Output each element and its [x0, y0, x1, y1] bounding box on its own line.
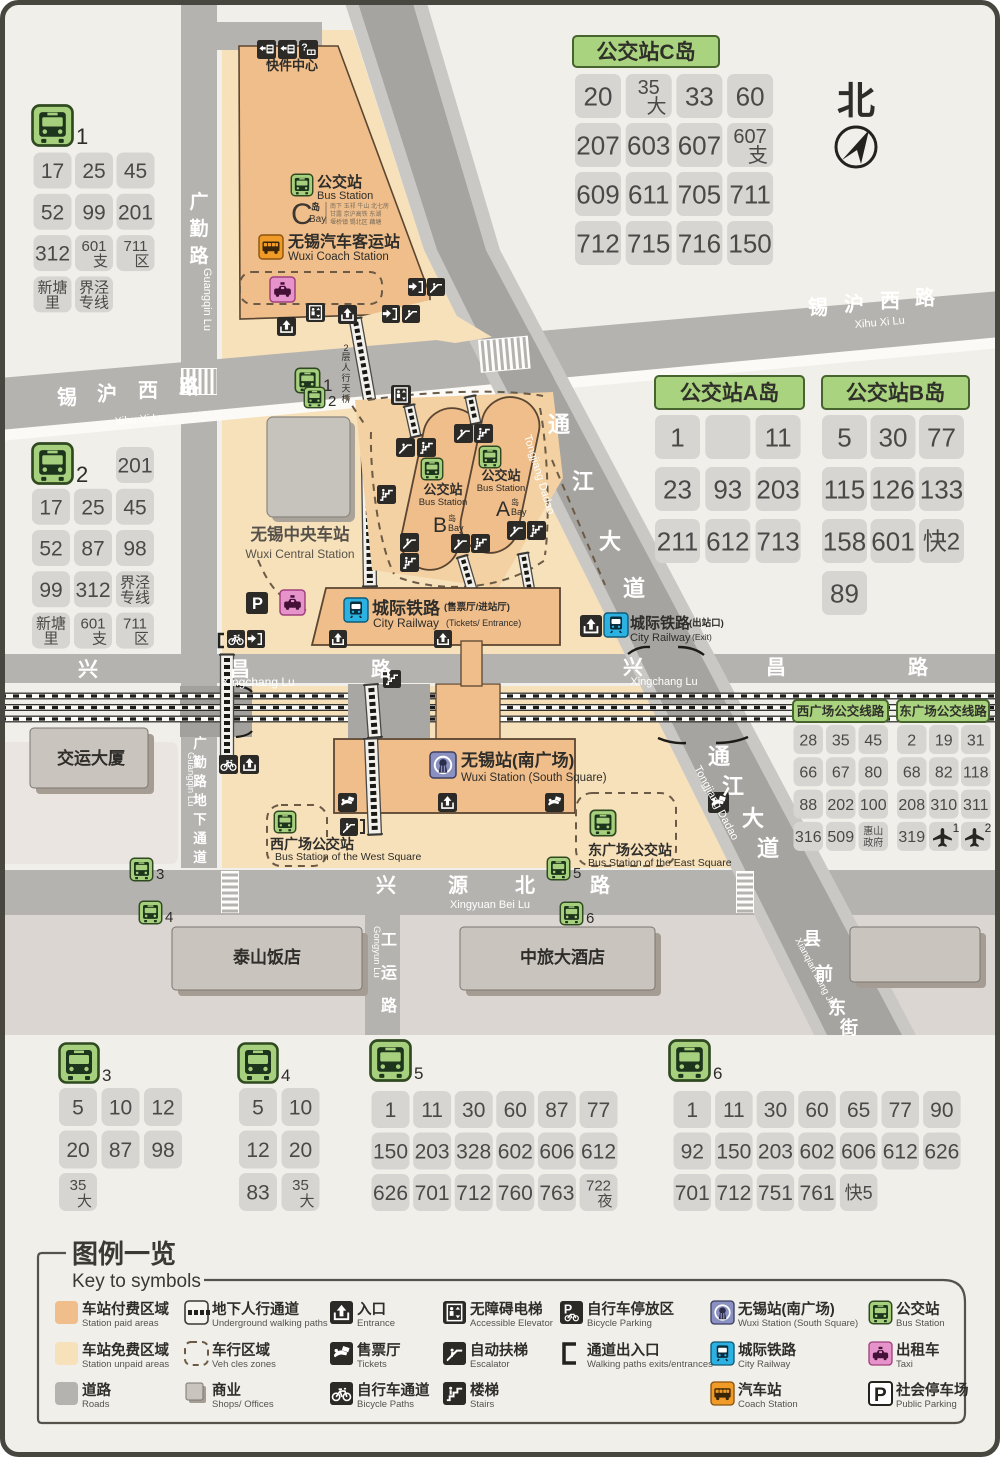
svg-text:沪: 沪 — [97, 382, 117, 406]
svg-text:606: 606 — [539, 1141, 574, 1164]
svg-text:77: 77 — [889, 1099, 912, 1122]
svg-text:87: 87 — [81, 538, 104, 561]
svg-text:20: 20 — [289, 1139, 312, 1162]
svg-text:712: 712 — [456, 1182, 491, 1205]
svg-text:65: 65 — [847, 1099, 870, 1122]
svg-text:无障碍电梯: 无障碍电梯 — [470, 1300, 543, 1318]
svg-text:层: 层 — [341, 352, 350, 362]
svg-text:312: 312 — [75, 579, 110, 602]
svg-text:惠山: 惠山 — [863, 824, 883, 837]
svg-text:705: 705 — [678, 179, 721, 209]
svg-text:5: 5 — [72, 1097, 84, 1120]
svg-text:公交站C岛: 公交站C岛 — [596, 40, 695, 64]
svg-text:北: 北 — [837, 81, 875, 123]
svg-text:城际铁路: 城际铁路 — [372, 598, 441, 618]
svg-text:713: 713 — [756, 526, 799, 556]
svg-text:公交站: 公交站 — [481, 468, 520, 483]
svg-text:312: 312 — [35, 243, 70, 266]
svg-text:图例一览: 图例一览 — [72, 1239, 176, 1269]
svg-text:19: 19 — [935, 732, 953, 749]
svg-text:路: 路 — [189, 244, 209, 267]
svg-text:City Railway: City Railway — [373, 616, 439, 630]
svg-text:路: 路 — [915, 285, 936, 309]
svg-text:716: 716 — [678, 228, 721, 258]
svg-text:20: 20 — [584, 81, 613, 111]
svg-text:11: 11 — [765, 422, 792, 452]
svg-text:90: 90 — [930, 1099, 953, 1122]
svg-text:626: 626 — [924, 1141, 959, 1164]
svg-text:80: 80 — [864, 765, 882, 782]
svg-text:Bay: Bay — [309, 214, 326, 225]
svg-text:南下 玉祁 牛山 北七房: 南下 玉祁 牛山 北七房 — [330, 202, 389, 210]
svg-text:大: 大 — [299, 1193, 314, 1210]
svg-text:100: 100 — [860, 797, 887, 814]
svg-text:150: 150 — [728, 228, 771, 258]
svg-text:35: 35 — [292, 1177, 309, 1194]
svg-text:楼梯: 楼梯 — [470, 1381, 499, 1399]
svg-text:2: 2 — [328, 393, 336, 410]
svg-text:203: 203 — [758, 1141, 793, 1164]
svg-text:路: 路 — [371, 657, 392, 681]
svg-text:612: 612 — [883, 1141, 918, 1164]
svg-text:10: 10 — [109, 1097, 132, 1120]
svg-text:310: 310 — [930, 797, 957, 814]
svg-text:4: 4 — [281, 1066, 290, 1085]
svg-text:10: 10 — [289, 1097, 312, 1120]
svg-text:52: 52 — [39, 538, 62, 561]
svg-text:203: 203 — [415, 1141, 450, 1164]
svg-text:政府: 政府 — [863, 836, 883, 849]
svg-text:712: 712 — [716, 1182, 751, 1205]
svg-text:江: 江 — [572, 469, 594, 494]
svg-text:3: 3 — [156, 866, 164, 883]
svg-text:87: 87 — [109, 1139, 132, 1162]
svg-text:无锡站(南广场): 无锡站(南广场) — [738, 1300, 835, 1318]
svg-text:通: 通 — [548, 412, 570, 437]
svg-text:西: 西 — [880, 291, 900, 313]
svg-text:沪: 沪 — [844, 292, 864, 316]
svg-text:98: 98 — [151, 1139, 174, 1162]
svg-text:45: 45 — [864, 732, 882, 749]
svg-text:通: 通 — [708, 744, 730, 769]
svg-text:98: 98 — [123, 538, 146, 561]
svg-text:1: 1 — [953, 821, 960, 835]
svg-text:快2: 快2 — [923, 529, 960, 556]
svg-text:208: 208 — [898, 797, 925, 814]
svg-text:锡: 锡 — [808, 295, 828, 319]
svg-text:Bus Station: Bus Station — [419, 497, 468, 508]
svg-text:下: 下 — [193, 812, 207, 827]
svg-text:201: 201 — [117, 455, 152, 478]
svg-text:601: 601 — [871, 526, 914, 556]
svg-text:兴: 兴 — [78, 658, 98, 681]
svg-text:源: 源 — [448, 874, 468, 897]
svg-text:1: 1 — [670, 422, 684, 452]
svg-text:Wuxi Station (South Square): Wuxi Station (South Square) — [461, 772, 607, 784]
svg-text:道: 道 — [193, 849, 207, 865]
svg-text:出租车: 出租车 — [896, 1341, 940, 1359]
svg-text:45: 45 — [124, 160, 147, 183]
svg-text:11: 11 — [421, 1099, 443, 1122]
svg-text:社会停车场: 社会停车场 — [895, 1381, 969, 1399]
svg-text:2: 2 — [907, 732, 916, 749]
svg-text:道: 道 — [623, 576, 645, 601]
svg-text:35: 35 — [832, 732, 850, 749]
svg-text:12: 12 — [246, 1139, 269, 1162]
svg-text:Entrance: Entrance — [357, 1318, 395, 1329]
svg-text:岛: 岛 — [511, 497, 519, 507]
svg-text:118: 118 — [963, 765, 989, 782]
svg-text:Bus Station: Bus Station — [896, 1318, 945, 1329]
svg-text:17: 17 — [39, 496, 62, 519]
svg-text:街: 街 — [839, 1017, 858, 1038]
svg-text:区: 区 — [134, 631, 149, 648]
svg-text:45: 45 — [123, 496, 146, 519]
svg-text:车行区域: 车行区域 — [212, 1341, 270, 1359]
svg-text:202: 202 — [827, 797, 854, 814]
svg-text:68: 68 — [903, 765, 921, 782]
svg-text:23: 23 — [663, 474, 692, 504]
svg-text:Accessible Elevator: Accessible Elevator — [470, 1318, 553, 1329]
svg-text:支: 支 — [92, 631, 107, 648]
svg-text:(出站口): (出站口) — [689, 617, 724, 629]
svg-text:里: 里 — [43, 631, 58, 648]
svg-text:1: 1 — [686, 1099, 698, 1122]
svg-text:(Exit): (Exit) — [692, 632, 712, 642]
svg-text:工: 工 — [381, 932, 397, 949]
svg-text:89: 89 — [830, 578, 859, 608]
svg-text:岛: 岛 — [311, 201, 320, 212]
svg-text:Bicycle Parking: Bicycle Parking — [587, 1318, 652, 1329]
svg-text:兴: 兴 — [376, 874, 396, 897]
svg-text:158: 158 — [823, 526, 866, 556]
svg-text:77: 77 — [927, 422, 956, 452]
svg-text:Coach Station: Coach Station — [738, 1399, 798, 1410]
svg-text:4: 4 — [165, 909, 173, 926]
svg-text:里: 里 — [45, 294, 60, 311]
svg-text:Escalator: Escalator — [470, 1359, 510, 1370]
svg-text:Bus Station of the West Square: Bus Station of the West Square — [275, 851, 421, 863]
svg-text:93: 93 — [713, 474, 742, 504]
svg-text:交运大厦: 交运大厦 — [57, 748, 126, 768]
svg-text:31: 31 — [967, 732, 985, 749]
svg-text:商业: 商业 — [212, 1381, 241, 1399]
svg-text:Guangqin Lu: Guangqin Lu — [185, 752, 196, 806]
svg-text:车站免费区域: 车站免费区域 — [82, 1341, 169, 1359]
svg-text:Xingchang Lu: Xingchang Lu — [630, 676, 697, 688]
svg-text:无锡中央车站: 无锡中央车站 — [250, 524, 351, 544]
svg-text:760: 760 — [498, 1182, 533, 1205]
svg-text:1: 1 — [76, 124, 88, 149]
svg-text:Station paid areas: Station paid areas — [82, 1318, 159, 1329]
svg-text:甘露 京沪高铁 东湖: 甘露 京沪高铁 东湖 — [330, 210, 381, 218]
svg-text:Wuxi Central Station: Wuxi Central Station — [245, 547, 354, 561]
svg-text:Taxi: Taxi — [896, 1359, 913, 1370]
svg-text:Shops/ Offices: Shops/ Offices — [212, 1399, 274, 1410]
svg-text:城际铁路: 城际铁路 — [738, 1341, 796, 1359]
svg-text:701: 701 — [415, 1182, 450, 1205]
svg-text:车站付费区域: 车站付费区域 — [82, 1300, 169, 1318]
svg-text:泰山饭店: 泰山饭店 — [233, 947, 301, 967]
svg-text:锡: 锡 — [57, 385, 77, 409]
svg-text:Bicycle Paths: Bicycle Paths — [357, 1399, 414, 1410]
svg-text:道路: 道路 — [82, 1381, 111, 1399]
svg-text:自行车停放区: 自行车停放区 — [587, 1300, 674, 1318]
svg-text:30: 30 — [764, 1099, 787, 1122]
svg-text:大: 大 — [77, 1193, 92, 1210]
svg-text:Bay: Bay — [448, 523, 464, 533]
svg-text:99: 99 — [82, 201, 105, 224]
svg-text:701: 701 — [675, 1182, 710, 1205]
svg-text:广: 广 — [193, 735, 207, 751]
svg-text:66: 66 — [799, 765, 817, 782]
svg-text:桥: 桥 — [341, 393, 350, 404]
svg-text:603: 603 — [627, 130, 670, 160]
svg-text:712: 712 — [576, 228, 619, 258]
svg-text:126: 126 — [871, 474, 914, 504]
svg-text:东广场公交线路: 东广场公交线路 — [899, 704, 987, 719]
svg-text:Bay: Bay — [511, 507, 527, 517]
svg-text:Public Parking: Public Parking — [896, 1399, 957, 1410]
svg-text:763: 763 — [539, 1182, 574, 1205]
svg-text:25: 25 — [81, 496, 104, 519]
svg-text:52: 52 — [41, 201, 64, 224]
svg-text:602: 602 — [800, 1141, 835, 1164]
svg-text:地下人行通道: 地下人行通道 — [212, 1300, 299, 1318]
svg-text:328: 328 — [456, 1141, 491, 1164]
svg-text:35: 35 — [70, 1177, 87, 1194]
svg-text:城际铁路: 城际铁路 — [630, 614, 691, 632]
svg-text:150: 150 — [716, 1141, 751, 1164]
svg-text:28: 28 — [799, 732, 817, 749]
svg-text:Bus Station: Bus Station — [477, 483, 526, 494]
svg-text:606: 606 — [841, 1141, 876, 1164]
svg-text:Walking paths exits/entrances: Walking paths exits/entrances — [587, 1359, 713, 1370]
svg-text:东广场公交站: 东广场公交站 — [588, 842, 672, 858]
svg-text:中旅大酒店: 中旅大酒店 — [520, 947, 605, 967]
svg-text:77: 77 — [587, 1099, 610, 1122]
svg-text:西广场公交站: 西广场公交站 — [270, 836, 354, 852]
svg-text:92: 92 — [681, 1141, 704, 1164]
svg-text:公交站A岛: 公交站A岛 — [680, 381, 779, 405]
svg-text:12: 12 — [151, 1097, 174, 1120]
svg-text:B: B — [433, 514, 447, 537]
svg-text:60: 60 — [736, 81, 765, 111]
svg-text:专线: 专线 — [120, 589, 150, 606]
svg-text:自行车通道: 自行车通道 — [357, 1381, 430, 1399]
svg-text:路: 路 — [590, 873, 611, 897]
svg-text:612: 612 — [706, 526, 749, 556]
svg-text:人: 人 — [341, 363, 350, 373]
svg-text:715: 715 — [627, 228, 670, 258]
svg-text:25: 25 — [82, 160, 105, 183]
svg-text:(售票厅/进站厅): (售票厅/进站厅) — [444, 601, 510, 613]
svg-text:Xingyuan Bei Lu: Xingyuan Bei Lu — [450, 899, 530, 911]
svg-text:堰桥镇 锡北区 藕塘: 堰桥镇 锡北区 藕塘 — [330, 218, 381, 226]
svg-text:City Railway: City Railway — [738, 1359, 791, 1370]
svg-text:203: 203 — [756, 474, 799, 504]
svg-text:行: 行 — [341, 372, 350, 383]
svg-text:专线: 专线 — [79, 294, 109, 311]
svg-text:311: 311 — [963, 797, 989, 814]
svg-text:通: 通 — [193, 831, 207, 846]
svg-text:761: 761 — [800, 1182, 835, 1205]
svg-text:Underground walking paths: Underground walking paths — [212, 1318, 328, 1329]
svg-text:Key to symbols: Key to symbols — [72, 1271, 201, 1292]
svg-text:30: 30 — [879, 422, 908, 452]
svg-text:316: 316 — [795, 829, 822, 846]
svg-text:2: 2 — [76, 462, 88, 487]
svg-text:大: 大 — [599, 529, 621, 554]
svg-text:60: 60 — [504, 1099, 527, 1122]
svg-text:Guangqin Lu: Guangqin Lu — [201, 268, 213, 331]
svg-text:广: 广 — [189, 190, 208, 213]
svg-text:岛: 岛 — [448, 513, 456, 523]
svg-text:33: 33 — [685, 81, 714, 111]
svg-text:北: 北 — [515, 874, 535, 897]
svg-text:115: 115 — [824, 474, 865, 504]
svg-text:67: 67 — [832, 765, 850, 782]
svg-text:Veh cles zones: Veh cles zones — [212, 1359, 276, 1370]
svg-text:支: 支 — [748, 144, 768, 167]
svg-text:Xingchang Lu: Xingchang Lu — [221, 675, 294, 689]
svg-text:入口: 入口 — [357, 1301, 386, 1318]
svg-text:西: 西 — [138, 380, 158, 402]
svg-text:207: 207 — [576, 130, 619, 160]
svg-text:5: 5 — [252, 1097, 264, 1120]
svg-text:Roads: Roads — [82, 1399, 110, 1410]
svg-text:611: 611 — [628, 179, 669, 209]
svg-text:751: 751 — [758, 1182, 793, 1205]
svg-text:快件中心: 快件中心 — [266, 58, 318, 73]
svg-text:99: 99 — [39, 579, 62, 602]
svg-text:602: 602 — [498, 1141, 533, 1164]
svg-text:快5: 快5 — [845, 1183, 873, 1203]
svg-text:2: 2 — [985, 821, 992, 835]
svg-text:支: 支 — [93, 253, 108, 270]
svg-text:133: 133 — [920, 474, 963, 504]
svg-text:150: 150 — [373, 1141, 408, 1164]
svg-text:11: 11 — [723, 1099, 745, 1122]
svg-text:711: 711 — [729, 179, 770, 209]
svg-text:道: 道 — [757, 836, 779, 861]
svg-text:5: 5 — [414, 1064, 423, 1083]
svg-text:20: 20 — [66, 1139, 89, 1162]
svg-text:3: 3 — [102, 1066, 111, 1085]
svg-text:211: 211 — [657, 526, 698, 556]
svg-text:(Tickets/ Entrance): (Tickets/ Entrance) — [446, 618, 521, 628]
svg-text:6: 6 — [713, 1064, 722, 1083]
svg-text:自动扶梯: 自动扶梯 — [470, 1341, 528, 1359]
svg-text:汽车站: 汽车站 — [738, 1381, 782, 1399]
svg-text:5: 5 — [837, 422, 851, 452]
svg-text:87: 87 — [545, 1099, 568, 1122]
svg-text:江: 江 — [722, 774, 744, 799]
svg-text:Wuxi Coach Station: Wuxi Coach Station — [288, 251, 389, 263]
svg-text:Gongyun Lu: Gongyun Lu — [371, 926, 382, 978]
svg-text:319: 319 — [898, 829, 925, 846]
svg-text:公交站: 公交站 — [896, 1300, 940, 1318]
svg-text:Station unpaid areas: Station unpaid areas — [82, 1359, 169, 1370]
svg-text:勤: 勤 — [189, 217, 208, 240]
svg-text:5: 5 — [573, 865, 581, 882]
svg-text:大: 大 — [647, 95, 667, 118]
svg-text:722: 722 — [586, 1178, 611, 1195]
svg-text:路: 路 — [179, 375, 200, 399]
svg-text:6: 6 — [586, 910, 594, 927]
svg-text:昌: 昌 — [766, 656, 786, 679]
svg-text:无锡汽车客运站: 无锡汽车客运站 — [287, 232, 400, 251]
svg-text:售票厅: 售票厅 — [357, 1341, 401, 1359]
svg-text:路: 路 — [908, 655, 929, 679]
svg-text:P: P — [252, 595, 263, 613]
svg-text:88: 88 — [799, 797, 817, 814]
svg-text:Wuxi Station (South Square): Wuxi Station (South Square) — [738, 1318, 858, 1329]
svg-text:17: 17 — [41, 160, 64, 183]
svg-text:Bus Station of the East Square: Bus Station of the East Square — [588, 857, 732, 869]
svg-text:1: 1 — [385, 1099, 397, 1122]
svg-text:201: 201 — [118, 201, 153, 224]
svg-text:?: ? — [301, 42, 307, 53]
svg-text:公交站: 公交站 — [317, 173, 362, 191]
svg-text:区: 区 — [134, 253, 149, 270]
svg-text:Bus Station: Bus Station — [317, 190, 373, 202]
svg-text:607: 607 — [678, 130, 721, 160]
svg-text:P: P — [874, 1385, 887, 1406]
svg-text:82: 82 — [935, 765, 953, 782]
svg-text:夜: 夜 — [597, 1193, 612, 1210]
svg-text:626: 626 — [373, 1182, 408, 1205]
svg-text:运: 运 — [381, 964, 397, 982]
svg-text:A: A — [496, 498, 510, 521]
svg-text:609: 609 — [576, 179, 619, 209]
svg-text:Stairs: Stairs — [470, 1399, 495, 1410]
svg-text:天: 天 — [341, 384, 350, 394]
svg-text:公交站B岛: 公交站B岛 — [846, 381, 945, 405]
svg-text:Tickets: Tickets — [357, 1359, 387, 1370]
svg-text:公交站: 公交站 — [423, 482, 462, 497]
svg-text:30: 30 — [462, 1099, 485, 1122]
svg-text:509: 509 — [827, 829, 854, 846]
svg-text:通道出入口: 通道出入口 — [587, 1341, 660, 1359]
svg-text:无锡站(南广场): 无锡站(南广场) — [460, 750, 574, 770]
svg-text:路: 路 — [381, 996, 398, 1015]
svg-text:612: 612 — [581, 1141, 616, 1164]
svg-text:西广场公交线路: 西广场公交线路 — [797, 704, 885, 719]
svg-text:City Railway: City Railway — [630, 632, 691, 644]
svg-text:大: 大 — [742, 806, 764, 831]
svg-text:60: 60 — [805, 1099, 828, 1122]
svg-text:83: 83 — [246, 1182, 269, 1205]
